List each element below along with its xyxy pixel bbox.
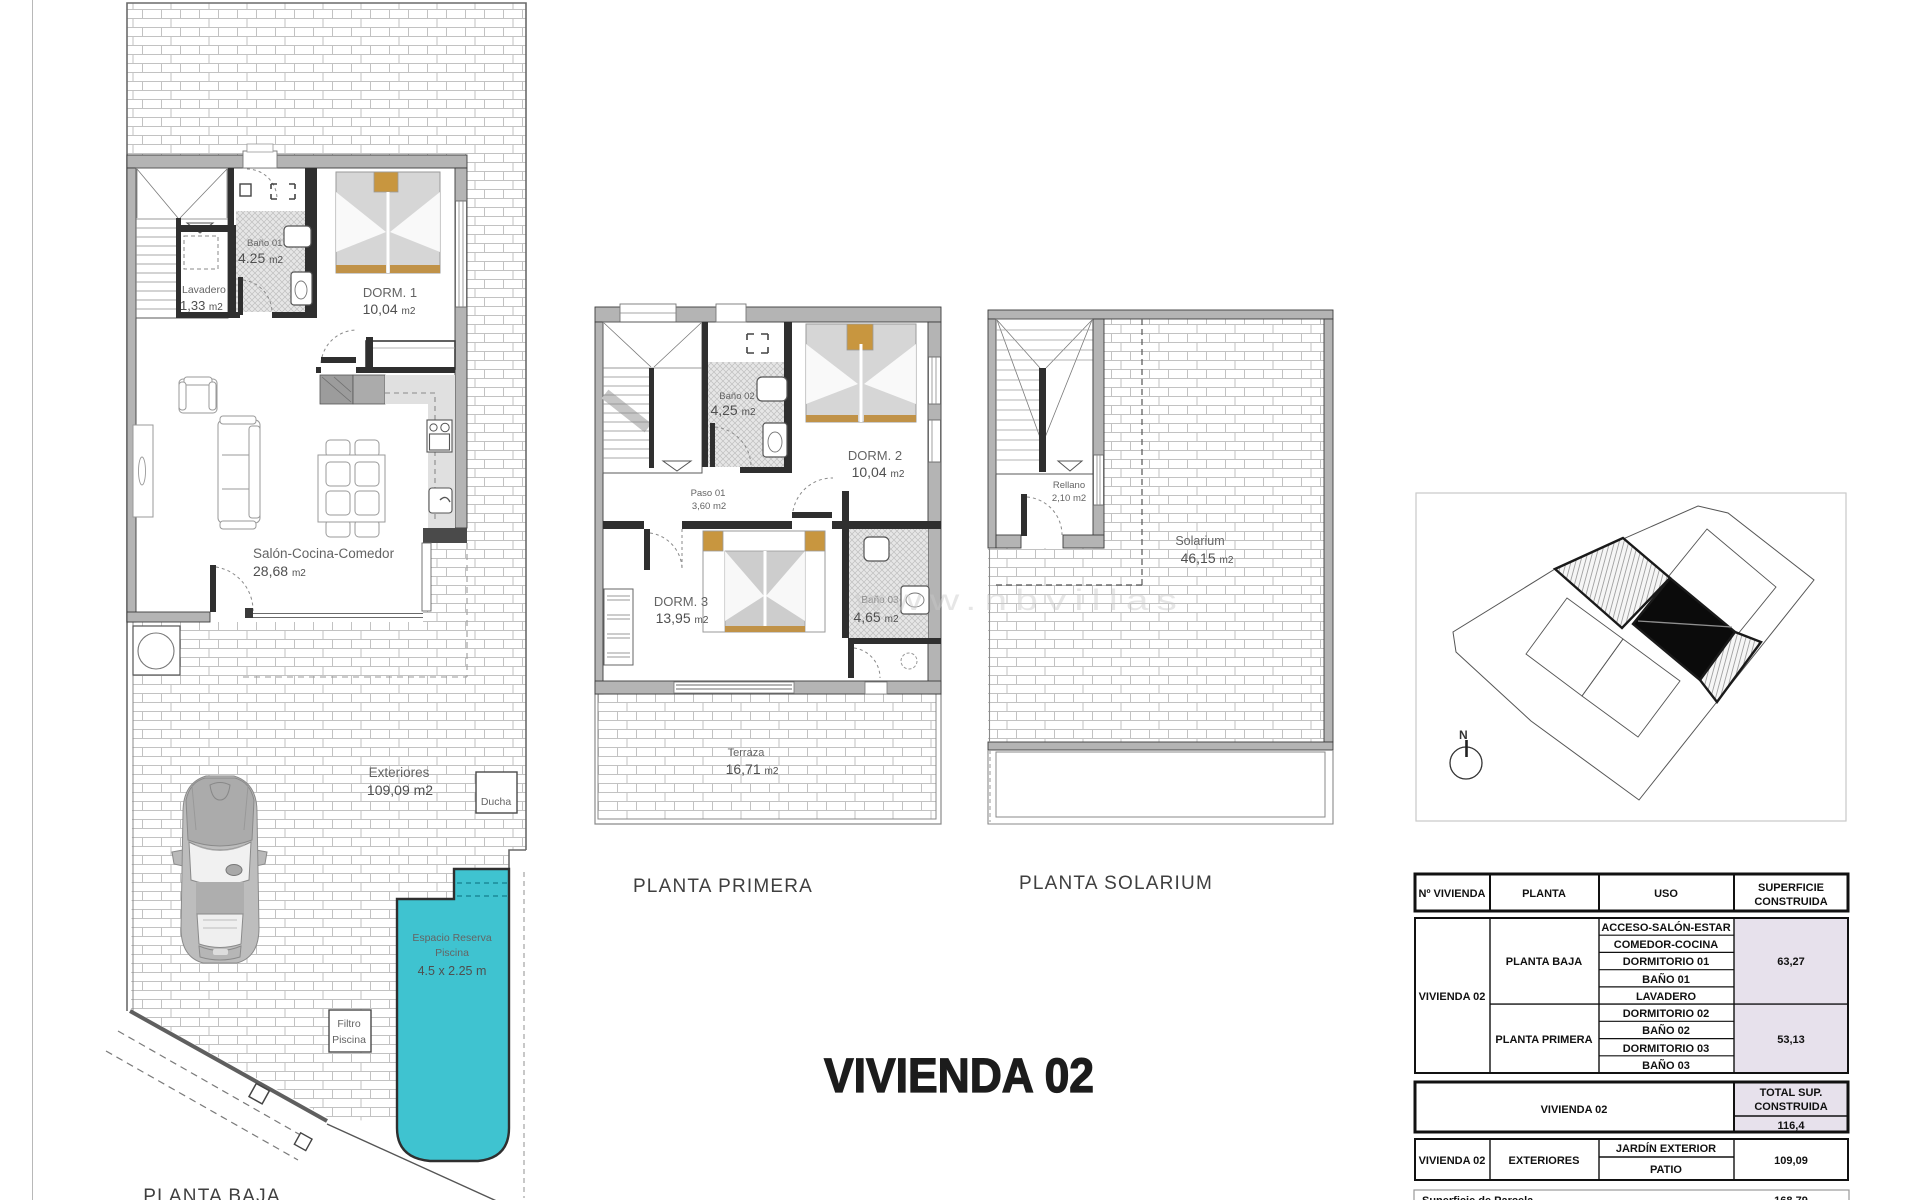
svg-text:DORMITORIO 02: DORMITORIO 02 <box>1623 1008 1710 1020</box>
svg-text:Filtro: Filtro <box>337 1018 360 1030</box>
svg-text:SUPERFICIE: SUPERFICIE <box>1758 882 1824 894</box>
svg-text:DORM. 1: DORM. 1 <box>363 285 417 300</box>
svg-text:DORM. 2: DORM. 2 <box>848 448 902 463</box>
svg-text:53,13: 53,13 <box>1777 1034 1805 1046</box>
svg-text:PLANTA PRIMERA: PLANTA PRIMERA <box>633 876 813 897</box>
svg-text:Exteriores: Exteriores <box>369 765 430 780</box>
svg-text:VIVIENDA 02: VIVIENDA 02 <box>1419 991 1486 1003</box>
svg-text:Espacio Reserva: Espacio Reserva <box>412 932 492 944</box>
svg-text:PLANTA: PLANTA <box>1522 888 1566 900</box>
svg-text:168,79: 168,79 <box>1774 1195 1808 1200</box>
svg-text:PLANTA BAJA: PLANTA BAJA <box>1506 956 1582 968</box>
svg-text:DORMITORIO 01: DORMITORIO 01 <box>1623 956 1710 968</box>
svg-text:Piscina: Piscina <box>332 1034 366 1046</box>
svg-text:PLANTA SOLARIUM: PLANTA SOLARIUM <box>1019 873 1213 894</box>
svg-text:109,09: 109,09 <box>1774 1155 1808 1167</box>
svg-text:Paso 01: Paso 01 <box>691 488 726 499</box>
svg-text:Solarium: Solarium <box>1175 534 1224 548</box>
svg-text:Nº VIVIENDA: Nº VIVIENDA <box>1419 888 1486 900</box>
svg-text:BAÑO 03: BAÑO 03 <box>1642 1059 1690 1072</box>
svg-text:Piscina: Piscina <box>435 947 469 959</box>
svg-text:BAÑO 01: BAÑO 01 <box>1642 973 1690 986</box>
svg-text:Terraza: Terraza <box>728 747 766 759</box>
svg-text:109,09 m2: 109,09 m2 <box>367 782 433 798</box>
svg-text:Superficie de Parcela: Superficie de Parcela <box>1422 1195 1534 1200</box>
svg-text:COMEDOR-COCINA: COMEDOR-COCINA <box>1614 939 1719 951</box>
svg-text:Salón-Cocina-Comedor: Salón-Cocina-Comedor <box>253 546 395 561</box>
svg-text:VIVIENDA 02: VIVIENDA 02 <box>1419 1155 1486 1167</box>
svg-text:DORM. 3: DORM. 3 <box>654 594 708 609</box>
svg-text:Lavadero: Lavadero <box>182 284 226 296</box>
svg-text:63,27: 63,27 <box>1777 956 1805 968</box>
svg-text:4.5 x 2.25 m: 4.5 x 2.25 m <box>418 964 487 978</box>
svg-text:LAVADERO: LAVADERO <box>1636 991 1697 1003</box>
svg-text:www.nbvillas: www.nbvillas <box>854 584 1185 617</box>
svg-text:TOTAL SUP.: TOTAL SUP. <box>1760 1087 1823 1099</box>
svg-text:Ducha: Ducha <box>481 796 512 808</box>
svg-text:JARDÍN EXTERIOR: JARDÍN EXTERIOR <box>1616 1142 1716 1155</box>
svg-text:3,60 m2: 3,60 m2 <box>692 501 726 512</box>
svg-text:PLANTA BAJA: PLANTA BAJA <box>143 1186 280 1200</box>
svg-text:PLANTA PRIMERA: PLANTA PRIMERA <box>1495 1034 1592 1046</box>
svg-text:USO: USO <box>1654 888 1678 900</box>
svg-text:CONSTRUIDA: CONSTRUIDA <box>1754 896 1827 908</box>
svg-text:VIVIENDA 02: VIVIENDA 02 <box>1541 1104 1608 1116</box>
svg-text:Baño 01: Baño 01 <box>247 238 282 249</box>
svg-text:EXTERIORES: EXTERIORES <box>1509 1155 1580 1167</box>
svg-text:VIVIENDA 02: VIVIENDA 02 <box>824 1050 1094 1103</box>
svg-text:116,4: 116,4 <box>1778 1120 1806 1132</box>
svg-text:PATIO: PATIO <box>1650 1164 1682 1176</box>
svg-text:N: N <box>1459 728 1468 742</box>
svg-text:Rellano: Rellano <box>1053 480 1085 491</box>
svg-text:CONSTRUIDA: CONSTRUIDA <box>1754 1101 1827 1113</box>
svg-text:2,10 m2: 2,10 m2 <box>1052 493 1086 504</box>
svg-text:Baño 02: Baño 02 <box>719 391 754 402</box>
svg-text:ACCESO-SALÓN-ESTAR: ACCESO-SALÓN-ESTAR <box>1601 921 1730 934</box>
svg-text:DORMITORIO 03: DORMITORIO 03 <box>1623 1043 1710 1055</box>
svg-text:BAÑO 02: BAÑO 02 <box>1642 1024 1690 1037</box>
